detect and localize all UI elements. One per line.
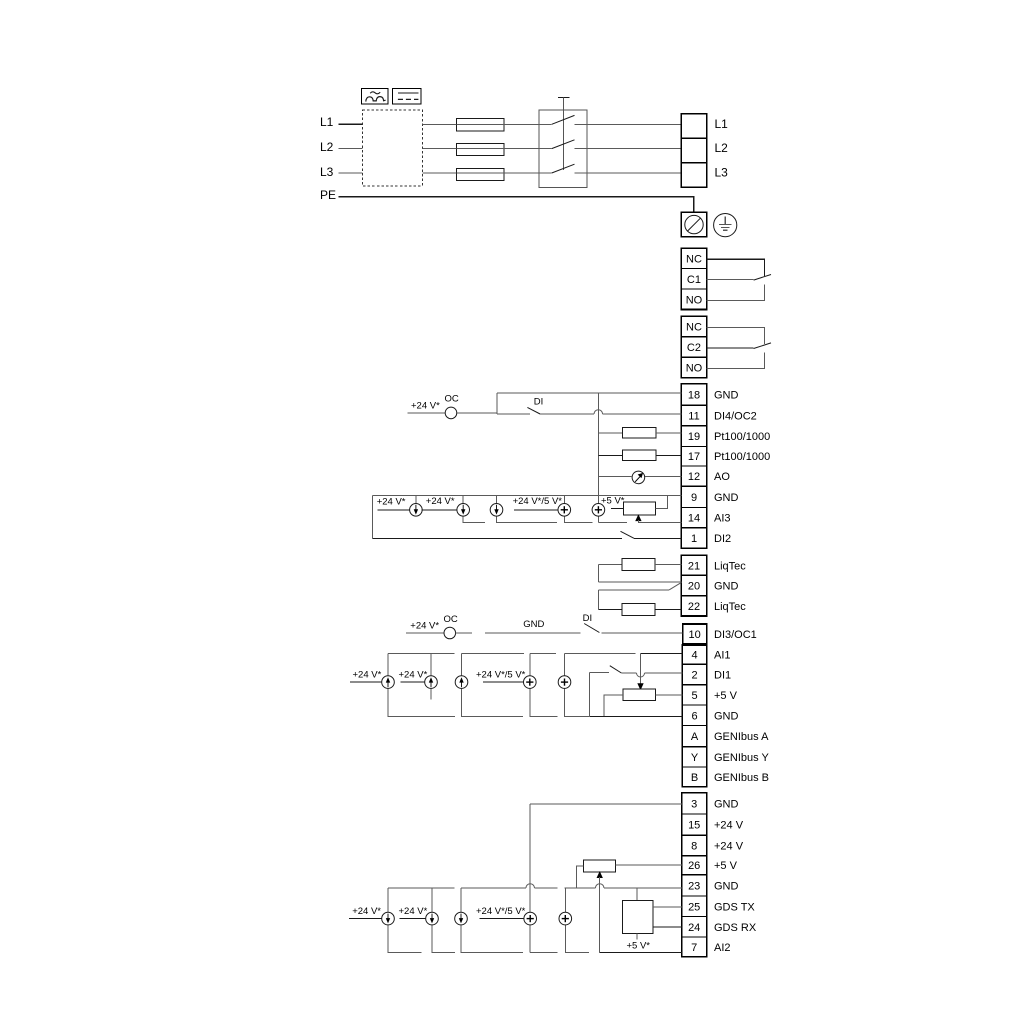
svg-text:GND: GND: [714, 389, 739, 401]
svg-text:7: 7: [691, 942, 697, 954]
svg-text:17: 17: [688, 451, 700, 463]
svg-text:24: 24: [688, 922, 700, 934]
svg-text:L2: L2: [320, 140, 334, 154]
svg-text:DI: DI: [583, 613, 593, 624]
svg-text:14: 14: [688, 513, 700, 525]
svg-text:L1: L1: [715, 117, 729, 131]
svg-text:+5 V*: +5 V*: [627, 940, 651, 951]
svg-text:+5 V*: +5 V*: [601, 496, 625, 507]
svg-text:AI2: AI2: [714, 942, 731, 954]
svg-text:+24 V*/5 V*: +24 V*/5 V*: [513, 496, 563, 507]
svg-text:+24 V*: +24 V*: [399, 906, 428, 917]
svg-text:+5 V: +5 V: [714, 860, 738, 872]
svg-text:6: 6: [691, 710, 697, 722]
svg-text:Pt100/1000: Pt100/1000: [714, 431, 770, 443]
svg-text:12: 12: [688, 471, 700, 483]
svg-text:18: 18: [688, 389, 700, 401]
svg-text:L3: L3: [320, 165, 334, 179]
svg-text:+24 V*/5 V*: +24 V*/5 V*: [476, 669, 526, 680]
svg-text:+5 V: +5 V: [714, 690, 738, 702]
svg-text:AI1: AI1: [714, 650, 731, 662]
svg-text:LiqTec: LiqTec: [714, 560, 746, 572]
svg-text:DI4/OC2: DI4/OC2: [714, 410, 757, 422]
svg-text:A: A: [691, 731, 699, 743]
svg-text:+24 V: +24 V: [714, 820, 744, 832]
svg-text:11: 11: [688, 410, 699, 422]
svg-text:+24 V: +24 V: [714, 841, 744, 853]
svg-text:4: 4: [691, 650, 697, 662]
svg-text:PE: PE: [320, 188, 336, 202]
svg-text:+24 V*: +24 V*: [377, 497, 406, 508]
svg-text:AI3: AI3: [714, 513, 731, 525]
svg-text:+24 V*: +24 V*: [399, 669, 428, 680]
svg-text:DI1: DI1: [714, 669, 731, 681]
svg-text:22: 22: [688, 601, 700, 613]
svg-text:GDS TX: GDS TX: [714, 901, 755, 913]
svg-text:10: 10: [689, 629, 701, 641]
svg-text:L1: L1: [320, 115, 334, 129]
svg-text:5: 5: [691, 690, 697, 702]
svg-text:B: B: [691, 772, 698, 784]
svg-text:GND: GND: [523, 619, 544, 630]
svg-text:GND: GND: [714, 710, 739, 722]
svg-text:DI: DI: [534, 396, 544, 407]
svg-text:1: 1: [691, 533, 697, 545]
svg-text:AO: AO: [714, 471, 730, 483]
svg-text:+24 V*: +24 V*: [353, 669, 382, 680]
svg-text:NC: NC: [686, 253, 702, 265]
svg-text:GND: GND: [714, 880, 739, 892]
svg-text:GENIbus A: GENIbus A: [714, 731, 769, 743]
svg-text:19: 19: [688, 431, 700, 443]
svg-text:L3: L3: [715, 165, 729, 179]
svg-text:C2: C2: [687, 342, 701, 354]
svg-text:+24 V*: +24 V*: [426, 496, 455, 507]
svg-text:15: 15: [688, 820, 700, 832]
svg-text:GENIbus B: GENIbus B: [714, 772, 769, 784]
svg-text:NC: NC: [686, 322, 702, 334]
svg-text:LiqTec: LiqTec: [714, 601, 746, 613]
svg-text:21: 21: [688, 560, 700, 572]
svg-text:GND: GND: [714, 492, 739, 504]
svg-text:8: 8: [691, 841, 697, 853]
svg-text:+24 V*: +24 V*: [352, 906, 381, 917]
svg-text:Pt100/1000: Pt100/1000: [714, 451, 770, 463]
svg-text:OC: OC: [445, 393, 459, 404]
svg-text:+24 V*: +24 V*: [410, 620, 439, 631]
svg-text:26: 26: [688, 860, 700, 872]
svg-text:DI3/OC1: DI3/OC1: [714, 629, 757, 641]
svg-text:Y: Y: [691, 752, 699, 764]
svg-text:20: 20: [688, 581, 700, 593]
svg-text:DI2: DI2: [714, 533, 731, 545]
svg-text:23: 23: [688, 880, 700, 892]
svg-text:25: 25: [688, 901, 700, 913]
svg-text:+24 V*: +24 V*: [411, 400, 440, 411]
svg-text:9: 9: [691, 492, 697, 504]
svg-text:NO: NO: [686, 294, 703, 306]
svg-text:OC: OC: [444, 614, 458, 625]
svg-text:GND: GND: [714, 581, 739, 593]
svg-text:+24 V*/5 V*: +24 V*/5 V*: [476, 906, 526, 917]
svg-text:L2: L2: [715, 141, 729, 155]
svg-text:3: 3: [691, 798, 697, 810]
svg-text:GENIbus Y: GENIbus Y: [714, 752, 769, 764]
svg-text:GDS RX: GDS RX: [714, 922, 757, 934]
svg-text:NO: NO: [686, 362, 703, 374]
svg-text:2: 2: [691, 669, 697, 681]
svg-text:C1: C1: [687, 274, 701, 286]
svg-text:GND: GND: [714, 798, 739, 810]
